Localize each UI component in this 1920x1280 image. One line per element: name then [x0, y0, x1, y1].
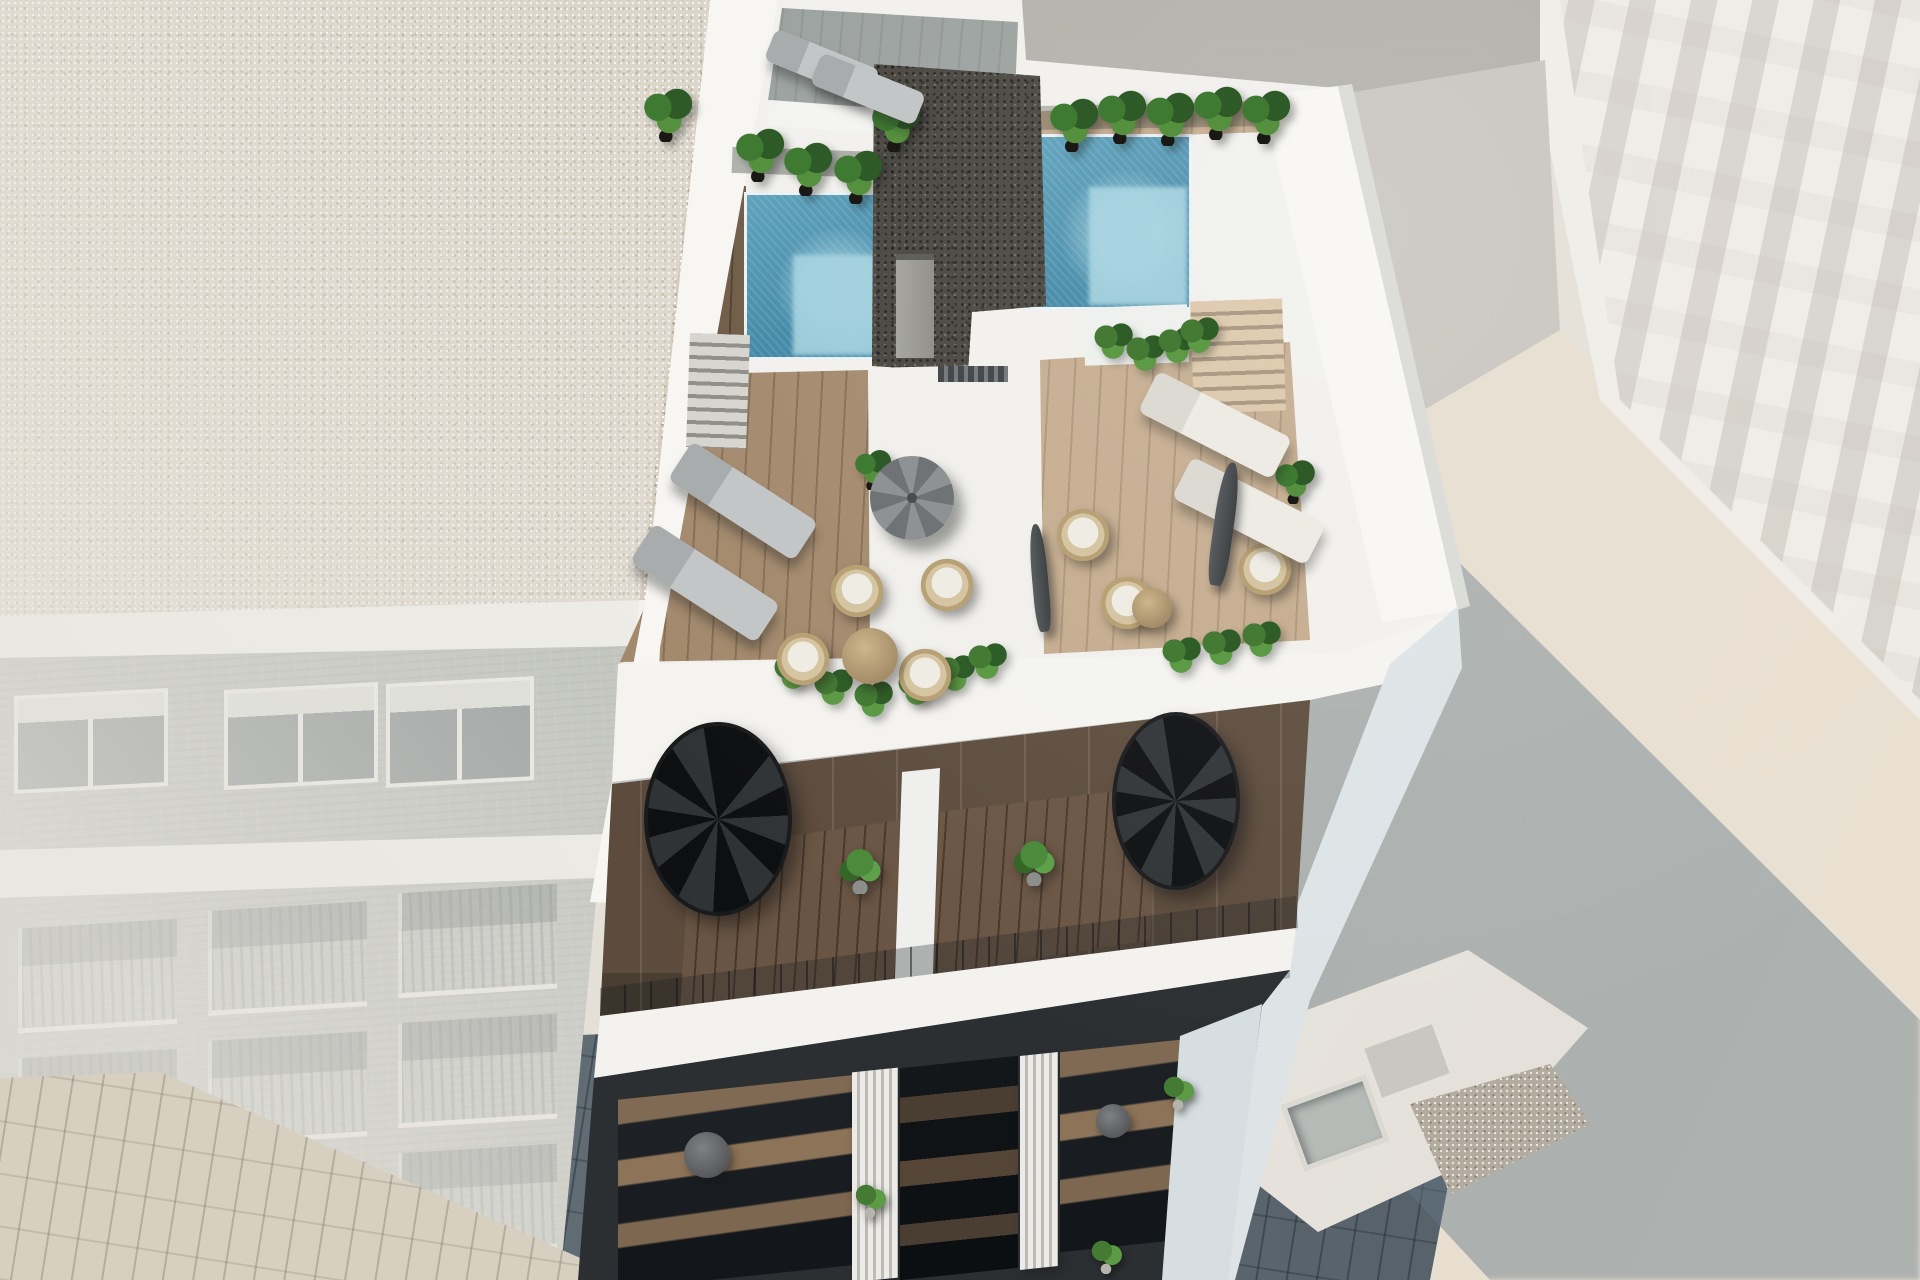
table-wood	[1132, 588, 1172, 628]
sunlight-glow	[0, 0, 1920, 1280]
palm	[1238, 88, 1294, 144]
wicker-chair	[920, 558, 974, 612]
table-dark	[1096, 1104, 1130, 1138]
wicker-chair	[1056, 508, 1110, 562]
balcony-plant	[1158, 1068, 1198, 1110]
umbrella-open	[870, 456, 954, 540]
palm	[640, 86, 696, 142]
table-wood	[842, 628, 898, 684]
palm	[780, 140, 836, 196]
palm	[830, 148, 886, 204]
bush	[1176, 312, 1222, 354]
wicker-chair	[898, 648, 952, 702]
balcony-plant	[850, 1176, 890, 1218]
aerial-architectural-render	[0, 0, 1920, 1280]
bush	[1238, 616, 1284, 658]
balcony-plant	[1086, 1232, 1126, 1274]
table-dark	[684, 1132, 730, 1178]
wicker-chair	[776, 632, 830, 686]
bush	[964, 638, 1010, 680]
pot-plant	[1010, 834, 1058, 886]
wicker-chair	[830, 564, 884, 618]
palm	[1272, 458, 1318, 504]
pot-plant	[836, 842, 884, 894]
